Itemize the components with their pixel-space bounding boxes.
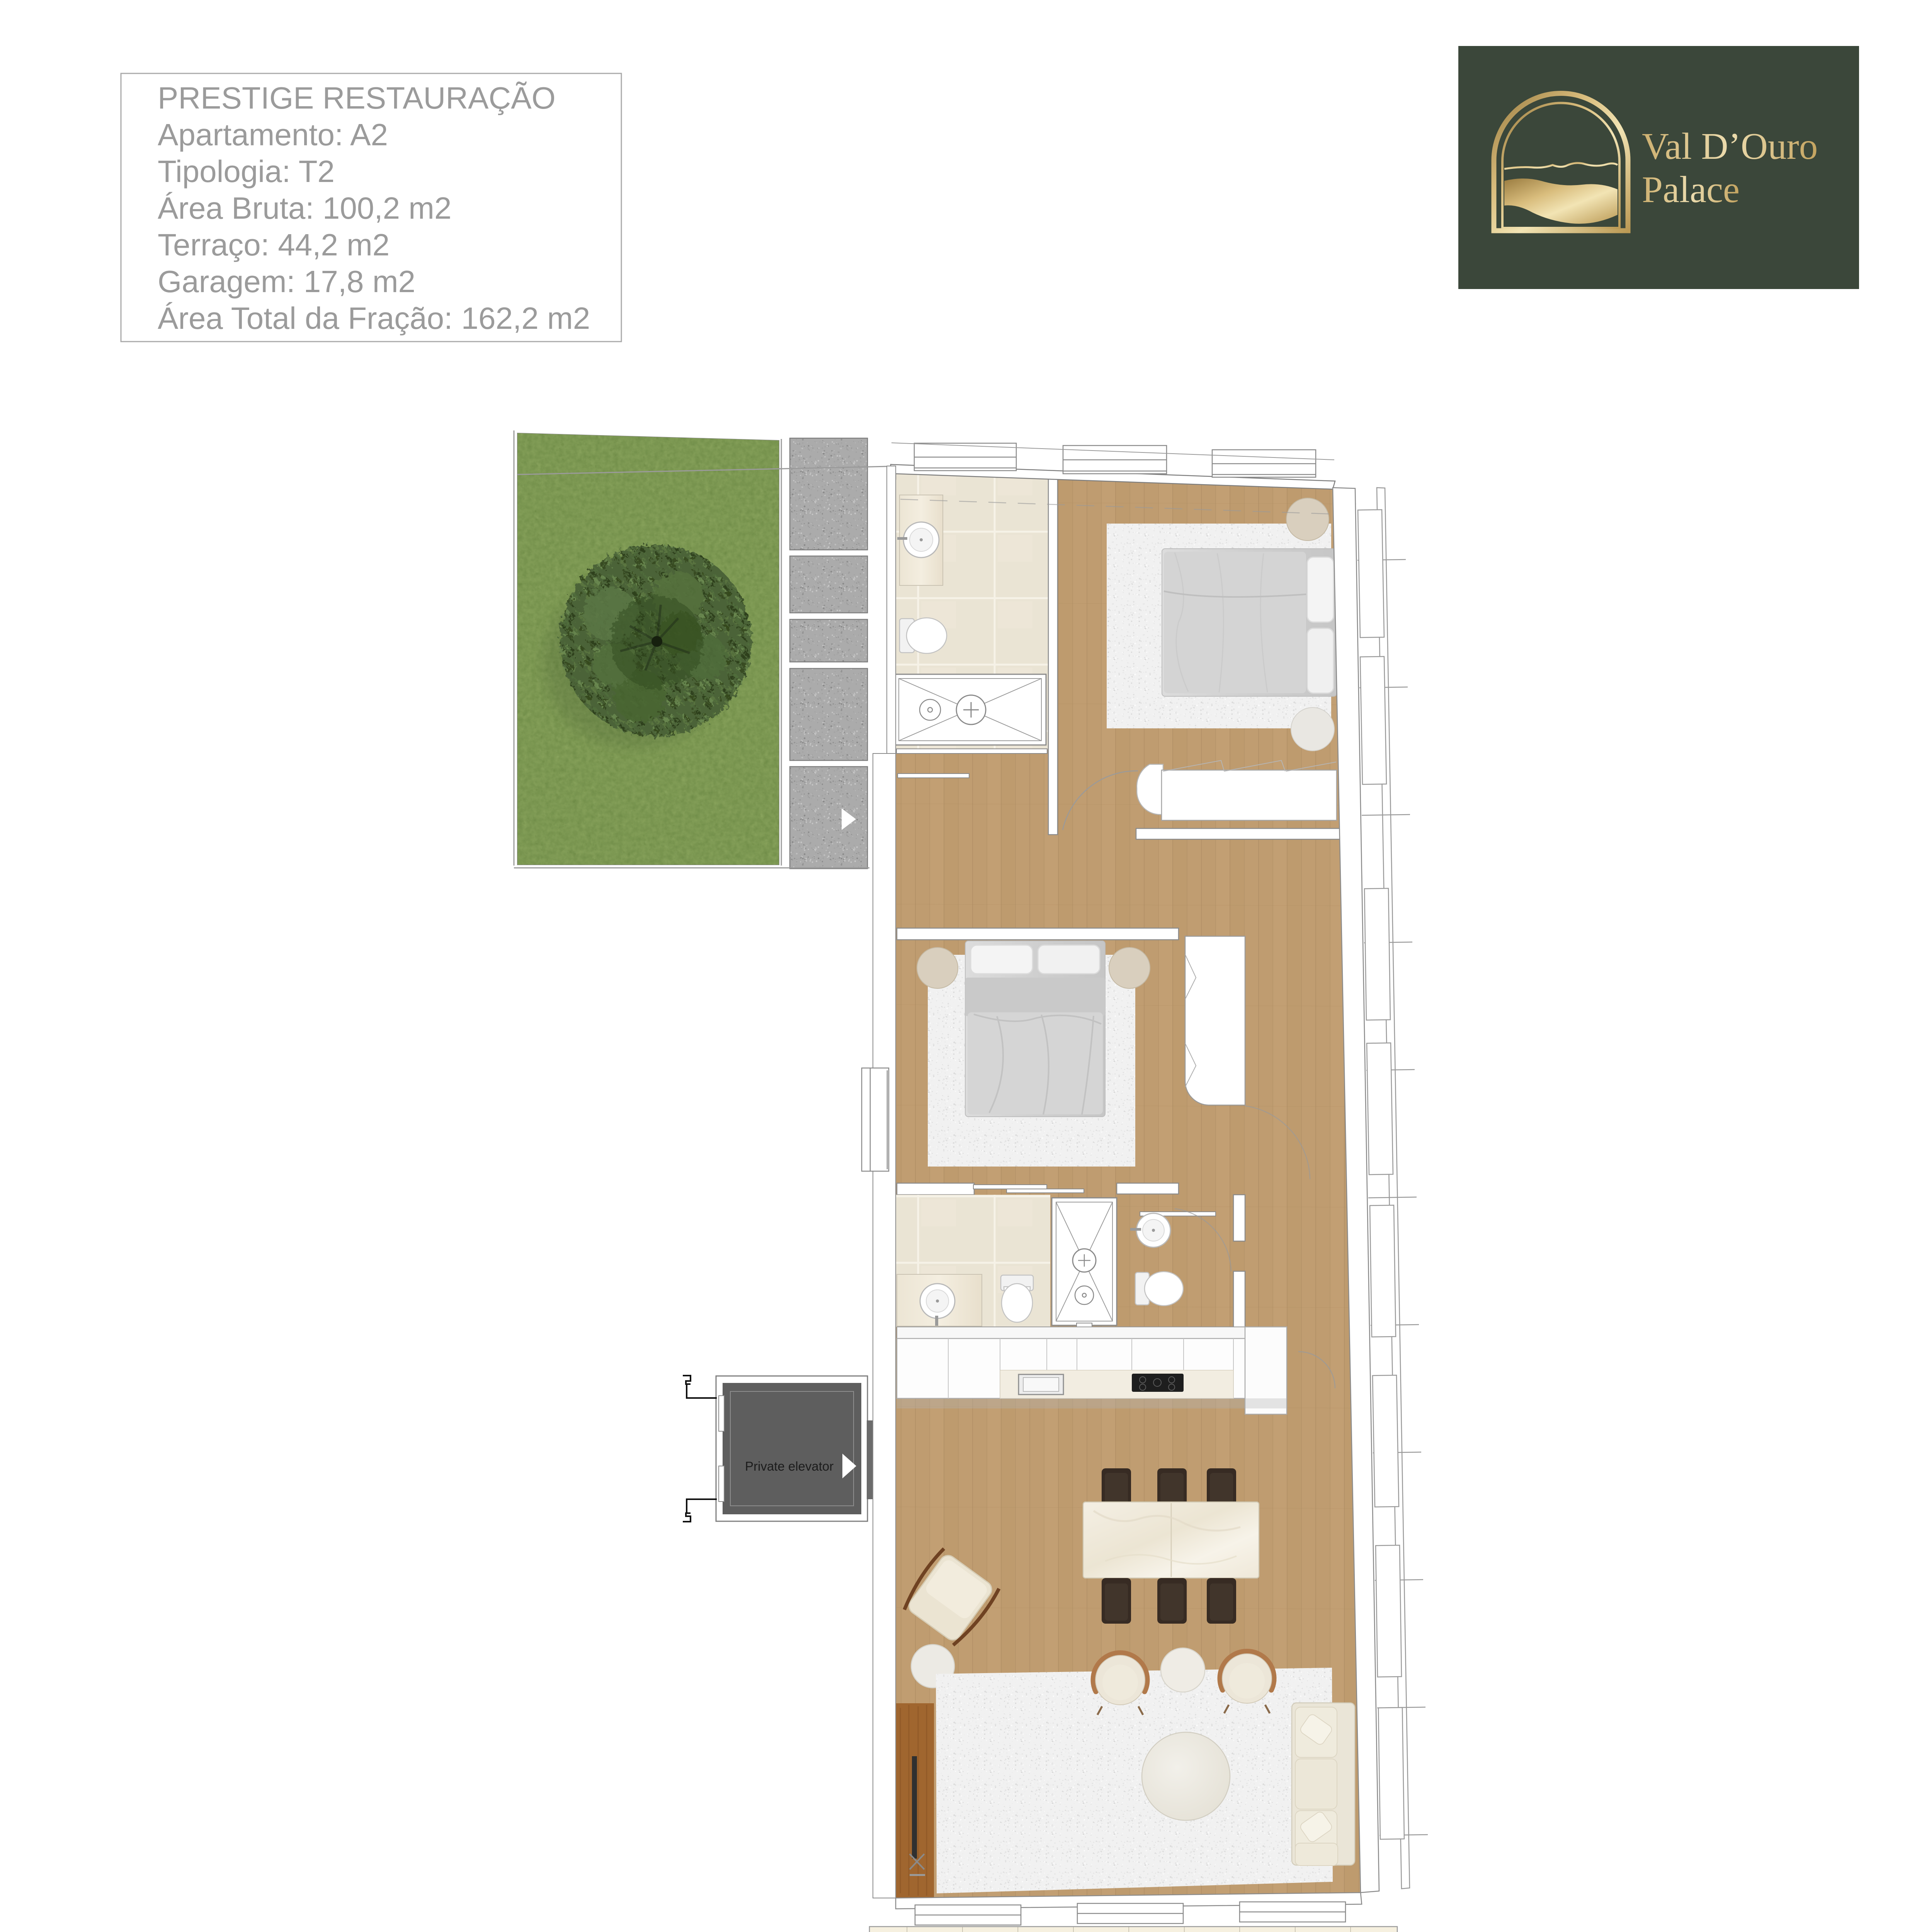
svg-text:Apartamento: A2: Apartamento: A2 (158, 117, 388, 152)
svg-text:Garagem: 17,8 m2: Garagem: 17,8 m2 (158, 264, 415, 299)
svg-text:Val D’Ouro: Val D’Ouro (1642, 126, 1818, 167)
svg-text:Área Bruta: 100,2 m2: Área Bruta: 100,2 m2 (158, 191, 451, 225)
svg-text:Private elevator: Private elevator (745, 1459, 833, 1473)
svg-text:Tipologia: T2: Tipologia: T2 (158, 154, 335, 189)
svg-text:Área Total da Fração: 162,2 m2: Área Total da Fração: 162,2 m2 (158, 301, 590, 335)
svg-text:PRESTIGE RESTAURAÇÃO: PRESTIGE RESTAURAÇÃO (158, 81, 556, 115)
svg-text:Palace: Palace (1642, 169, 1740, 210)
svg-text:Terraço: 44,2 m2: Terraço: 44,2 m2 (158, 228, 390, 262)
